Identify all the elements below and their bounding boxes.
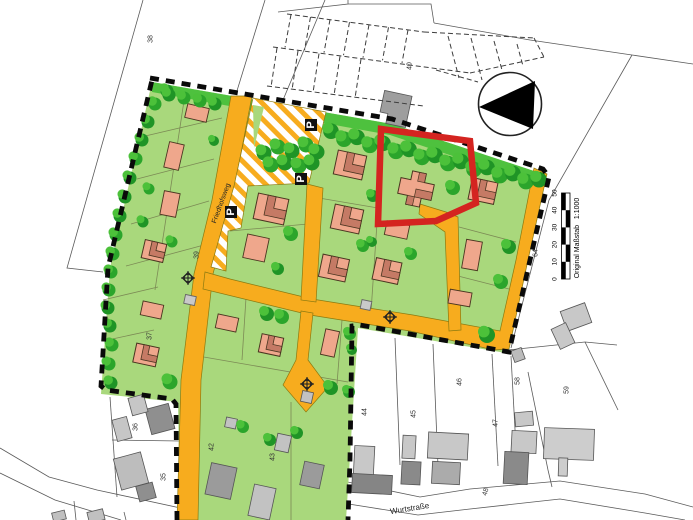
svg-text:40: 40: [407, 62, 414, 70]
svg-text:44: 44: [362, 408, 369, 416]
svg-text:47: 47: [493, 419, 500, 427]
svg-text:45: 45: [411, 410, 418, 418]
svg-text:37: 37: [147, 332, 154, 340]
svg-text:20: 20: [552, 241, 559, 249]
svg-text:43: 43: [270, 453, 277, 461]
svg-text:P: P: [225, 208, 237, 215]
svg-text:50: 50: [552, 189, 559, 197]
svg-text:0: 0: [552, 277, 559, 281]
svg-text:58: 58: [515, 377, 522, 385]
svg-text:P: P: [305, 121, 317, 128]
svg-text:38: 38: [148, 35, 155, 43]
svg-text:40: 40: [552, 206, 559, 214]
svg-text:42: 42: [209, 443, 216, 451]
svg-text:35: 35: [161, 473, 168, 481]
svg-text:46: 46: [457, 378, 464, 386]
svg-text:36: 36: [133, 423, 140, 431]
svg-text:10: 10: [552, 258, 559, 266]
svg-text:64: 64: [533, 249, 540, 257]
svg-text:Original Maßstab 1:1000: Original Maßstab 1:1000: [574, 198, 581, 279]
svg-text:39: 39: [194, 251, 201, 259]
svg-text:30: 30: [552, 223, 559, 231]
svg-text:59: 59: [564, 386, 571, 394]
svg-text:P: P: [295, 175, 307, 182]
